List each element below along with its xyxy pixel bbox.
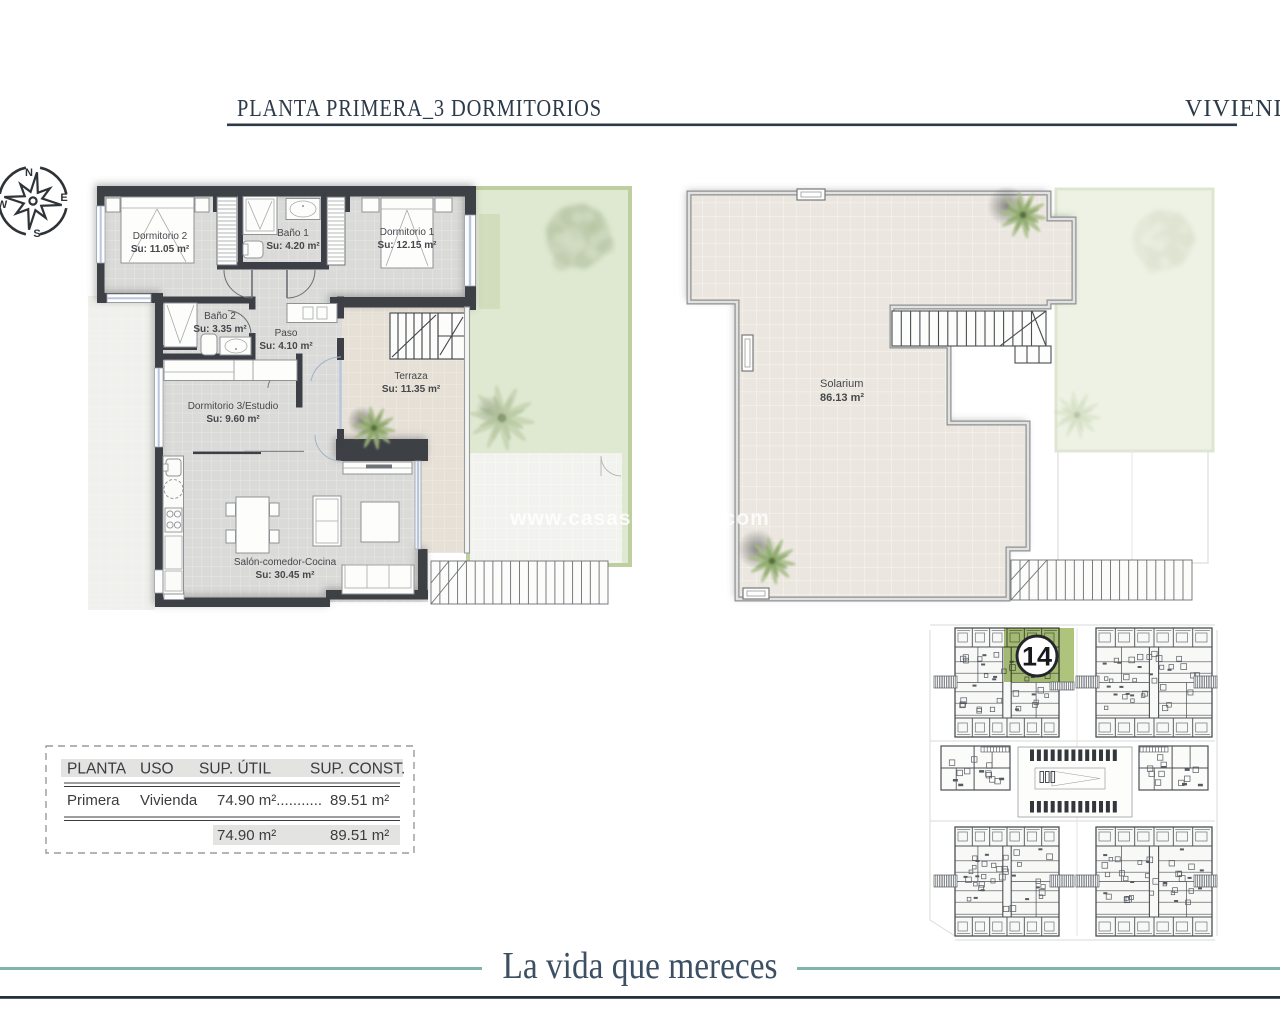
svg-text:74.90 m²...........: 74.90 m²........... (217, 792, 322, 809)
svg-text:Su: 4.10 m²: Su: 4.10 m² (259, 341, 313, 352)
svg-text:Su: 11.35 m²: Su: 11.35 m² (382, 384, 441, 395)
svg-text:N: N (25, 167, 33, 179)
svg-text:Su: 4.20 m²: Su: 4.20 m² (266, 241, 320, 252)
svg-text:86.13 m²: 86.13 m² (820, 392, 864, 404)
svg-text:PLANTA PRIMERA_3 DORMITORIOS: PLANTA PRIMERA_3 DORMITORIOS (237, 96, 602, 122)
svg-text:SUP. CONST.: SUP. CONST. (310, 761, 405, 778)
svg-text:89.51 m²: 89.51 m² (330, 792, 389, 809)
svg-text:89.51 m²: 89.51 m² (330, 827, 389, 844)
svg-text:Su: 12.15 m²: Su: 12.15 m² (378, 240, 438, 251)
svg-text:PLANTA: PLANTA (67, 761, 127, 778)
svg-text:Salón-comedor-Cocina: Salón-comedor-Cocina (234, 557, 337, 568)
svg-text:W: W (0, 199, 8, 211)
svg-text:Dormitorio 1: Dormitorio 1 (380, 227, 435, 238)
svg-text:14: 14 (1022, 642, 1052, 672)
svg-text:Solarium: Solarium (820, 378, 863, 390)
svg-text:S: S (33, 228, 40, 240)
svg-text:www.casasespania.com: www.casasespania.com (509, 507, 770, 530)
svg-text:Paso: Paso (275, 328, 298, 339)
svg-text:Vivienda: Vivienda (140, 792, 198, 809)
svg-text:Su: 3.35 m²: Su: 3.35 m² (193, 324, 247, 335)
svg-text:Dormitorio 2: Dormitorio 2 (133, 231, 188, 242)
svg-text:Baño 2: Baño 2 (204, 311, 236, 322)
svg-text:VIVIENDA: VIVIENDA (1185, 96, 1280, 122)
svg-text:Su: 11.05 m²: Su: 11.05 m² (131, 244, 190, 255)
svg-text:SUP. ÚTIL: SUP. ÚTIL (199, 761, 271, 778)
svg-text:E: E (60, 192, 67, 204)
svg-text:Terraza: Terraza (394, 371, 428, 382)
svg-text:Primera: Primera (67, 792, 120, 809)
svg-text:74.90 m²: 74.90 m² (217, 827, 276, 844)
svg-text:La vida que mereces: La vida que mereces (503, 945, 778, 987)
svg-text:Su: 30.45 m²: Su: 30.45 m² (256, 570, 316, 581)
svg-text:USO: USO (140, 761, 174, 778)
svg-text:Baño 1: Baño 1 (277, 228, 309, 239)
svg-text:Dormitorio 3/Estudio: Dormitorio 3/Estudio (188, 401, 279, 412)
svg-text:Su: 9.60 m²: Su: 9.60 m² (206, 414, 260, 425)
